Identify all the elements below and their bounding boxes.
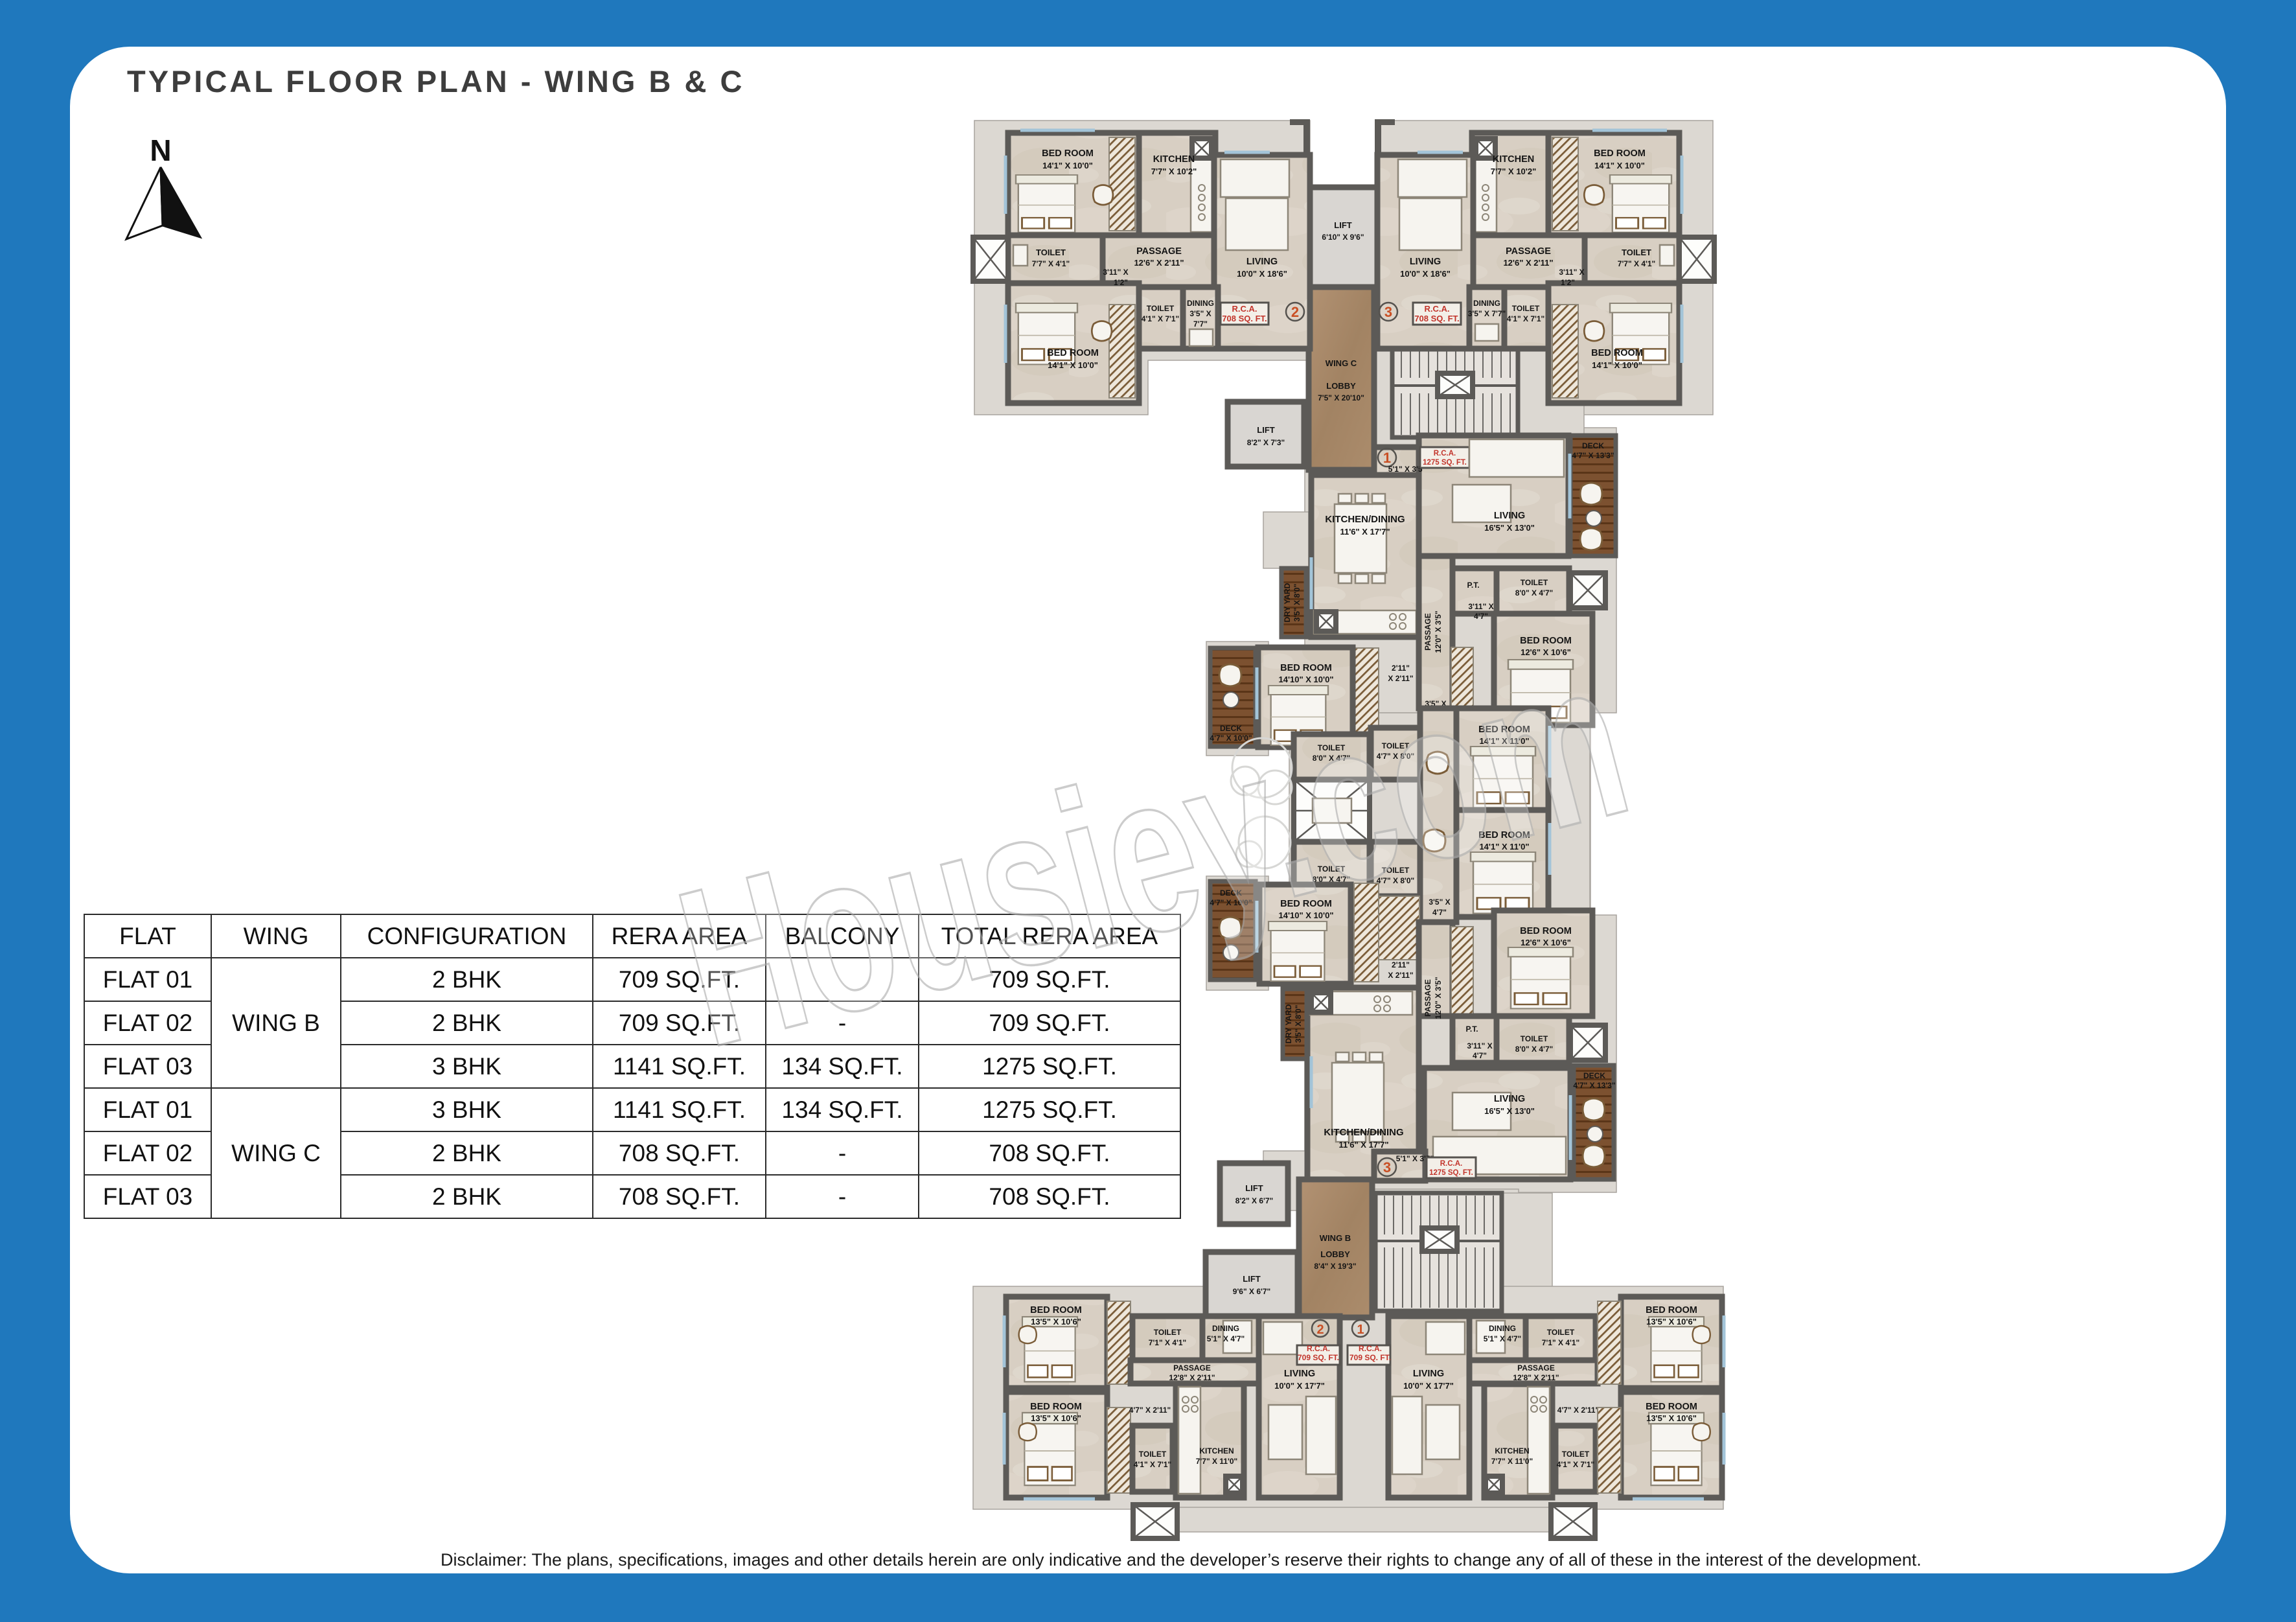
svg-text:4'1" X 7'1": 4'1" X 7'1" xyxy=(1134,1460,1171,1469)
svg-text:DINING: DINING xyxy=(1187,299,1214,308)
svg-text:1275 SQ. FT.: 1275 SQ. FT. xyxy=(1423,459,1467,467)
svg-text:708 SQ. FT.: 708 SQ. FT. xyxy=(1414,314,1459,323)
svg-text:5'1" X 4'7": 5'1" X 4'7" xyxy=(1207,1334,1245,1343)
svg-text:13'5" X 10'6": 13'5" X 10'6" xyxy=(1031,1413,1081,1423)
svg-text:11'6" X 17'7": 11'6" X 17'7" xyxy=(1338,1140,1388,1150)
svg-text:14'1" X 10'0": 14'1" X 10'0" xyxy=(1592,360,1642,370)
svg-text:8'2" X 6'7": 8'2" X 6'7" xyxy=(1235,1196,1273,1205)
svg-text:7'7" X 4'1": 7'7" X 4'1" xyxy=(1032,259,1070,268)
svg-text:3'11" X: 3'11" X xyxy=(1467,1041,1492,1050)
svg-text:DECK: DECK xyxy=(1582,441,1604,450)
svg-text:BED ROOM: BED ROOM xyxy=(1047,348,1099,358)
svg-text:BED ROOM: BED ROOM xyxy=(1520,926,1572,936)
svg-text:6'10" X 9'6": 6'10" X 9'6" xyxy=(1322,233,1364,242)
svg-text:3'5" X 7'7": 3'5" X 7'7" xyxy=(1468,309,1506,318)
svg-text:R.C.A.: R.C.A. xyxy=(1440,1160,1463,1168)
svg-text:8'4" X 19'3": 8'4" X 19'3" xyxy=(1314,1262,1356,1271)
svg-text:1: 1 xyxy=(1357,1323,1364,1337)
svg-text:BED ROOM: BED ROOM xyxy=(1594,148,1646,159)
svg-text:10'0" X 17'7": 10'0" X 17'7" xyxy=(1403,1381,1454,1391)
svg-text:LIVING: LIVING xyxy=(1246,257,1278,267)
svg-text:1275 SQ. FT.: 1275 SQ. FT. xyxy=(1429,1169,1473,1177)
svg-text:2'11": 2'11" xyxy=(1392,960,1410,969)
svg-text:KITCHEN/DINING: KITCHEN/DINING xyxy=(1324,1127,1403,1138)
svg-text:PASSAGE: PASSAGE xyxy=(1517,1363,1555,1373)
svg-text:7'7" X 11'0": 7'7" X 11'0" xyxy=(1196,1457,1237,1466)
svg-text:TOILET: TOILET xyxy=(1521,578,1548,587)
svg-text:2: 2 xyxy=(1291,304,1299,320)
svg-text:KITCHEN: KITCHEN xyxy=(1199,1446,1234,1455)
svg-text:DRY YARD: DRY YARD xyxy=(1283,583,1292,622)
svg-text:708 SQ. FT.: 708 SQ. FT. xyxy=(1222,314,1267,323)
svg-text:BED ROOM: BED ROOM xyxy=(1591,348,1643,358)
svg-text:PASSAGE: PASSAGE xyxy=(1136,246,1182,257)
svg-text:KITCHEN: KITCHEN xyxy=(1493,154,1534,165)
svg-text:7'7": 7'7" xyxy=(1193,319,1208,329)
svg-text:12'8" X 2'11": 12'8" X 2'11" xyxy=(1513,1373,1559,1382)
svg-text:N: N xyxy=(150,133,171,167)
svg-text:LIVING: LIVING xyxy=(1494,511,1525,521)
svg-text:4'7" X 13'3": 4'7" X 13'3" xyxy=(1572,451,1614,460)
svg-text:TOILET: TOILET xyxy=(1622,248,1651,257)
svg-text:LOBBY: LOBBY xyxy=(1320,1249,1350,1259)
svg-text:3'5" X: 3'5" X xyxy=(1189,309,1211,318)
svg-text:X 2'11": X 2'11" xyxy=(1388,971,1413,980)
svg-text:DINING: DINING xyxy=(1212,1324,1239,1333)
svg-text:WING B: WING B xyxy=(1320,1233,1351,1243)
svg-text:4'7": 4'7" xyxy=(1474,612,1488,621)
svg-text:BED ROOM: BED ROOM xyxy=(1646,1305,1697,1315)
svg-text:13'5" X 10'6": 13'5" X 10'6" xyxy=(1646,1317,1697,1327)
svg-text:PASSAGE: PASSAGE xyxy=(1423,979,1432,1017)
svg-text:8'0" X 4'7": 8'0" X 4'7" xyxy=(1515,1045,1553,1054)
svg-text:5'1" X 4'7": 5'1" X 4'7" xyxy=(1484,1334,1521,1343)
svg-text:16'5" X 13'0": 16'5" X 13'0" xyxy=(1484,523,1535,533)
svg-text:13'5" X 10'6": 13'5" X 10'6" xyxy=(1646,1413,1697,1423)
svg-text:9'6" X 6'7": 9'6" X 6'7" xyxy=(1233,1287,1270,1296)
svg-text:3'11" X: 3'11" X xyxy=(1103,268,1128,277)
svg-text:2: 2 xyxy=(1316,1323,1324,1337)
svg-text:R.C.A.: R.C.A. xyxy=(1425,304,1450,314)
svg-text:TOILET: TOILET xyxy=(1512,304,1540,313)
svg-text:12'0" X 3'5": 12'0" X 3'5" xyxy=(1434,977,1443,1019)
svg-text:7'7" X 10'2": 7'7" X 10'2" xyxy=(1491,167,1537,176)
svg-text:TOILET: TOILET xyxy=(1521,1034,1548,1043)
svg-text:12'6" X 2'11": 12'6" X 2'11" xyxy=(1503,258,1553,268)
svg-text:BED ROOM: BED ROOM xyxy=(1030,1305,1082,1315)
svg-text:13'5" X 10'6": 13'5" X 10'6" xyxy=(1031,1317,1081,1327)
svg-text:BED ROOM: BED ROOM xyxy=(1042,148,1094,159)
svg-text:4'7" X 13'3": 4'7" X 13'3" xyxy=(1573,1081,1615,1090)
svg-text:1: 1 xyxy=(1383,450,1391,466)
svg-text:TOILET: TOILET xyxy=(1036,248,1066,257)
svg-text:P.T.: P.T. xyxy=(1465,1025,1478,1034)
svg-text:LIFT: LIFT xyxy=(1245,1183,1263,1193)
svg-text:R.C.A.: R.C.A. xyxy=(1359,1344,1382,1353)
svg-text:3'11" X: 3'11" X xyxy=(1559,268,1584,277)
svg-text:1'2": 1'2" xyxy=(1114,278,1128,287)
svg-text:KITCHEN: KITCHEN xyxy=(1495,1446,1529,1455)
svg-text:PASSAGE: PASSAGE xyxy=(1423,613,1432,651)
svg-text:PASSAGE: PASSAGE xyxy=(1173,1363,1211,1373)
svg-text:LIFT: LIFT xyxy=(1243,1274,1260,1284)
svg-text:PASSAGE: PASSAGE xyxy=(1506,246,1551,257)
svg-text:7'7" X 10'2": 7'7" X 10'2" xyxy=(1151,167,1197,176)
svg-text:7'1" X 4'1": 7'1" X 4'1" xyxy=(1149,1338,1186,1347)
svg-text:4'1" X 7'1": 4'1" X 7'1" xyxy=(1142,314,1179,323)
svg-text:LIFT: LIFT xyxy=(1334,220,1351,230)
svg-text:TOILET: TOILET xyxy=(1147,304,1175,313)
svg-text:7'7" X 4'1": 7'7" X 4'1" xyxy=(1618,259,1655,268)
svg-text:8'2" X 7'3": 8'2" X 7'3" xyxy=(1247,438,1285,447)
svg-text:KITCHEN: KITCHEN xyxy=(1153,154,1195,165)
svg-text:LOBBY: LOBBY xyxy=(1326,381,1356,391)
svg-text:LIVING: LIVING xyxy=(1494,1094,1525,1104)
svg-text:TOILET: TOILET xyxy=(1547,1328,1575,1337)
svg-text:LIFT: LIFT xyxy=(1257,425,1274,435)
svg-text:R.C.A.: R.C.A. xyxy=(1434,450,1456,458)
svg-text:P.T.: P.T. xyxy=(1467,581,1479,590)
svg-text:BED ROOM: BED ROOM xyxy=(1280,663,1332,673)
svg-text:3'5" X 8'0": 3'5" X 8'0" xyxy=(1292,584,1302,621)
svg-text:4'7": 4'7" xyxy=(1473,1051,1487,1060)
svg-text:8'0" X 4'7": 8'0" X 4'7" xyxy=(1515,588,1553,597)
svg-text:4'1" X 7'1": 4'1" X 7'1" xyxy=(1557,1460,1594,1469)
svg-text:14'1" X 10'0": 14'1" X 10'0" xyxy=(1042,161,1093,170)
svg-text:BED ROOM: BED ROOM xyxy=(1646,1402,1697,1412)
svg-text:7'5" X 20'10": 7'5" X 20'10" xyxy=(1318,393,1364,402)
svg-text:TOILET: TOILET xyxy=(1139,1450,1167,1459)
svg-text:DINING: DINING xyxy=(1473,299,1500,308)
svg-text:10'0" X 17'7": 10'0" X 17'7" xyxy=(1274,1381,1325,1391)
svg-text:3'5" X 8'0": 3'5" X 8'0" xyxy=(1294,1005,1303,1043)
svg-text:1'2": 1'2" xyxy=(1561,278,1575,287)
svg-text:14'1" X 10'0": 14'1" X 10'0" xyxy=(1594,161,1645,170)
svg-text:4'1" X 7'1": 4'1" X 7'1" xyxy=(1507,314,1544,323)
svg-text:TOILET: TOILET xyxy=(1154,1328,1182,1337)
svg-text:12'6" X 2'11": 12'6" X 2'11" xyxy=(1134,258,1184,268)
svg-text:3'11" X: 3'11" X xyxy=(1468,602,1493,611)
svg-text:TOILET: TOILET xyxy=(1562,1450,1590,1459)
svg-text:DECK: DECK xyxy=(1583,1071,1605,1080)
svg-text:11'6" X 17'7": 11'6" X 17'7" xyxy=(1340,527,1390,537)
svg-text:7'7" X 11'0": 7'7" X 11'0" xyxy=(1491,1457,1533,1466)
svg-text:KITCHEN/DINING: KITCHEN/DINING xyxy=(1325,514,1405,525)
svg-text:R.C.A.: R.C.A. xyxy=(1232,304,1257,314)
svg-text:10'0" X 18'6": 10'0" X 18'6" xyxy=(1400,269,1451,279)
svg-text:LIVING: LIVING xyxy=(1410,257,1441,267)
svg-text:14'1" X 10'0": 14'1" X 10'0" xyxy=(1048,360,1098,370)
svg-text:BED ROOM: BED ROOM xyxy=(1030,1402,1082,1412)
svg-text:709 SQ. FT.: 709 SQ. FT. xyxy=(1298,1353,1339,1362)
svg-text:DRY YARD: DRY YARD xyxy=(1284,1004,1293,1043)
svg-text:4'7" X 2'11": 4'7" X 2'11" xyxy=(1129,1406,1171,1415)
svg-text:3: 3 xyxy=(1383,1159,1391,1176)
svg-text:12'8" X 2'11": 12'8" X 2'11" xyxy=(1169,1373,1215,1382)
svg-text:12'0" X 3'5": 12'0" X 3'5" xyxy=(1434,610,1443,653)
svg-text:709 SQ. FT.: 709 SQ. FT. xyxy=(1349,1353,1391,1362)
svg-text:16'5" X 13'0": 16'5" X 13'0" xyxy=(1484,1106,1535,1116)
svg-text:10'0" X 18'6": 10'0" X 18'6" xyxy=(1237,269,1287,279)
svg-text:LIVING: LIVING xyxy=(1284,1369,1315,1379)
svg-text:R.C.A.: R.C.A. xyxy=(1307,1344,1330,1353)
svg-text:3: 3 xyxy=(1384,304,1392,320)
svg-text:7'1" X 4'1": 7'1" X 4'1" xyxy=(1542,1338,1579,1347)
svg-text:DINING: DINING xyxy=(1489,1324,1516,1333)
svg-text:LIVING: LIVING xyxy=(1413,1369,1444,1379)
svg-text:12'6" X 10'6": 12'6" X 10'6" xyxy=(1521,938,1571,947)
svg-text:WING C: WING C xyxy=(1326,358,1357,368)
svg-text:4'7" X 2'11": 4'7" X 2'11" xyxy=(1557,1406,1599,1415)
